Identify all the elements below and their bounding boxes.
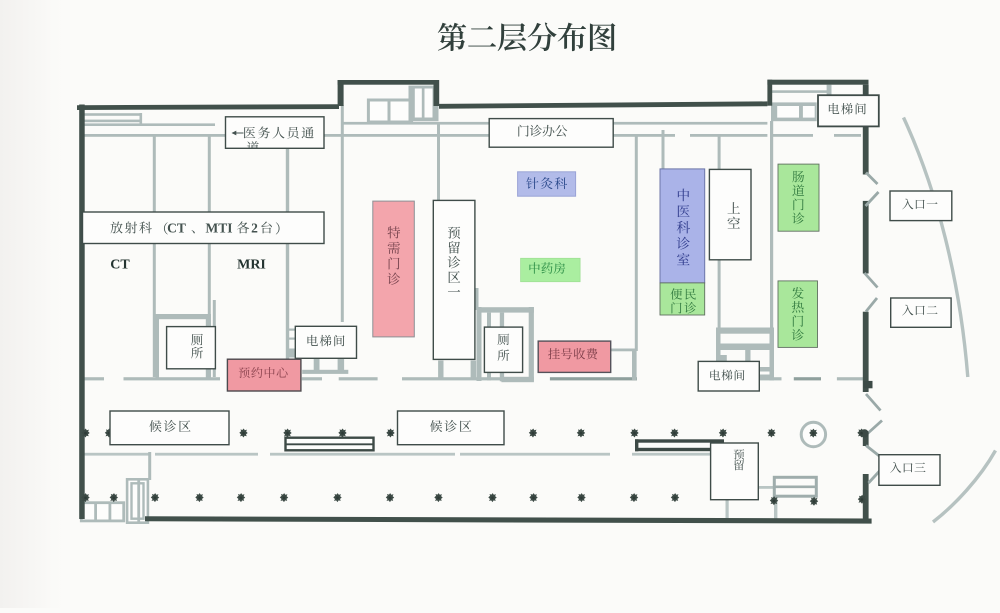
svg-text:MRI: MRI (237, 257, 266, 272)
svg-text:CT: CT (110, 257, 130, 272)
svg-text:2: 2 (251, 221, 258, 236)
svg-text:CT: CT (167, 221, 186, 236)
svg-text:MTI: MTI (206, 221, 233, 236)
